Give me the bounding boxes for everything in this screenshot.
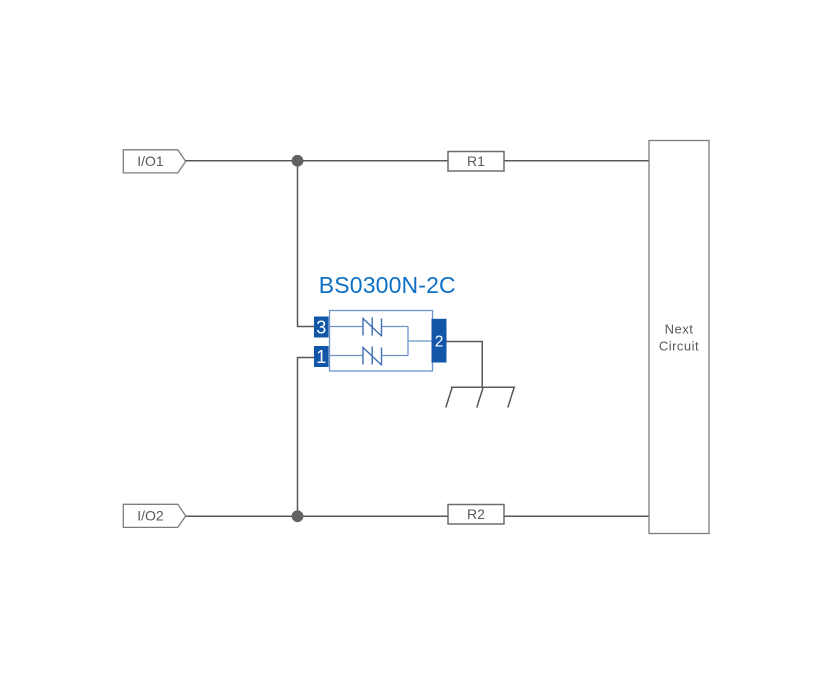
svg-text:R2: R2: [467, 506, 485, 522]
svg-text:2: 2: [435, 334, 444, 351]
svg-text:1: 1: [316, 347, 326, 367]
svg-text:I/O1: I/O1: [137, 153, 164, 169]
svg-text:Circuit: Circuit: [659, 339, 699, 354]
svg-text:Next: Next: [665, 322, 694, 337]
svg-text:BS0300N-2C: BS0300N-2C: [319, 272, 456, 298]
svg-text:3: 3: [316, 318, 326, 338]
svg-text:R1: R1: [467, 153, 485, 169]
svg-text:I/O2: I/O2: [137, 508, 164, 524]
